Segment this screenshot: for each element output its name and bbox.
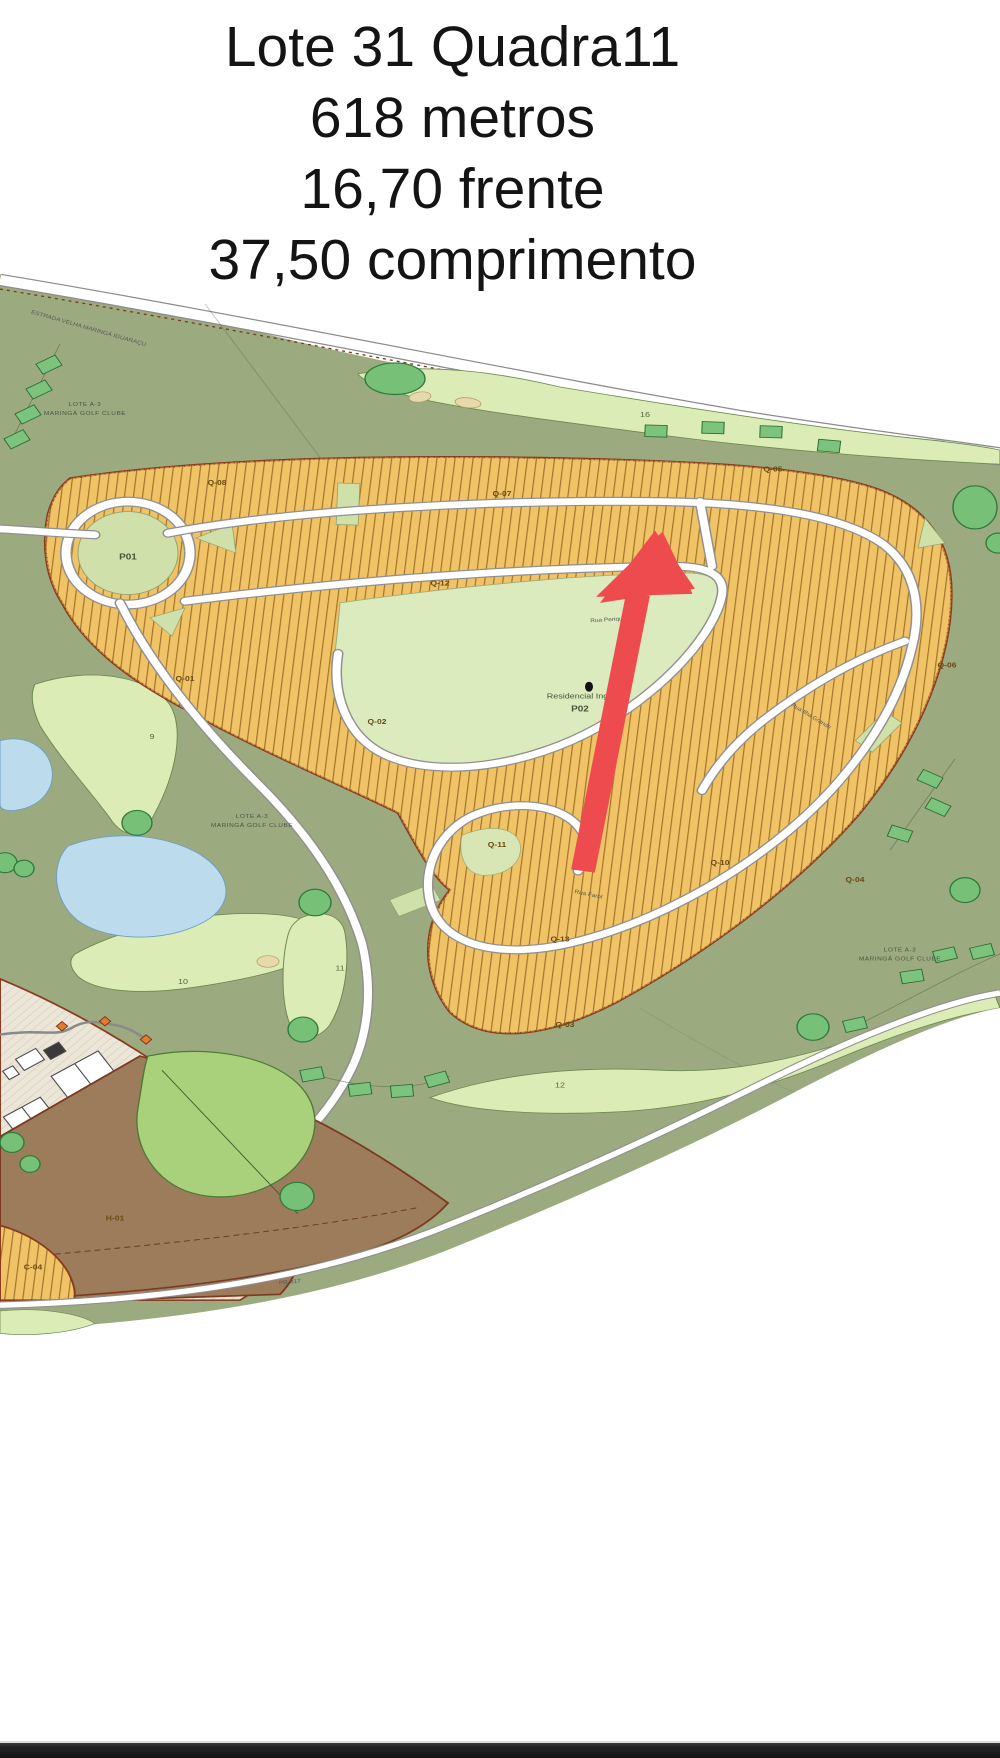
golf-club-caption-line1: LOTE A-3 xyxy=(884,948,917,953)
block-label-q01: Q-01 xyxy=(176,675,196,683)
block-label-q06: Q-06 xyxy=(938,661,958,669)
hole-10-label: 10 xyxy=(178,978,188,986)
hole-9-label: 9 xyxy=(149,733,154,741)
title-lot-line: Lote 31 Quadra11 xyxy=(0,12,905,83)
golf-club-caption-line2: MARINGÁ GOLF CLUBE xyxy=(211,822,293,828)
golf-club-caption-line2: MARINGÁ GOLF CLUBE xyxy=(44,411,126,417)
tree-icon xyxy=(797,1014,829,1041)
golf-club-caption-line1: LOTE A-3 xyxy=(69,403,102,408)
golf-club-caption-line2: MARINGÁ GOLF CLUBE xyxy=(859,956,941,962)
block-label-q07: Q-07 xyxy=(493,489,512,497)
block-label-q13: Q-13 xyxy=(551,935,571,943)
hole-12-label: 12 xyxy=(555,1081,565,1089)
block-label-q02: Q-02 xyxy=(368,718,388,726)
residencial-inga-label: Residencial Ingá xyxy=(547,692,614,700)
p02-label: P02 xyxy=(571,704,589,713)
hole-11-label: 11 xyxy=(335,964,345,972)
tree-icon xyxy=(14,860,34,877)
block-label-q05: Q-05 xyxy=(764,465,784,473)
hole-16-label: 16 xyxy=(640,411,650,419)
tree-icon xyxy=(299,889,331,916)
tree-icon xyxy=(365,363,425,395)
tree-icon xyxy=(20,1156,40,1173)
block-label-q04: Q-04 xyxy=(846,875,866,883)
site-plan-map: ESTRADA VELHA MARINGÁ IGUARAÇU xyxy=(0,265,1000,1560)
block-label-h01: H-01 xyxy=(106,1214,125,1222)
tree-icon xyxy=(953,486,997,529)
block-label-q03: Q-03 xyxy=(556,1021,576,1029)
device-bottom-bar xyxy=(0,1741,1000,1758)
site-plan-svg: ESTRADA VELHA MARINGÁ IGUARAÇU xyxy=(0,265,1000,1560)
tree-icon xyxy=(280,1182,314,1210)
tree-icon xyxy=(122,810,152,835)
listing-title: Lote 31 Quadra11 618 metros 16,70 frente… xyxy=(0,12,905,296)
block-label-q08: Q-08 xyxy=(208,479,228,487)
title-length-line: 37,50 comprimento xyxy=(0,225,905,296)
tree-icon xyxy=(288,1017,318,1042)
block-label-q12: Q-12 xyxy=(431,579,451,587)
title-front-line: 16,70 frente xyxy=(0,154,905,225)
tree-icon xyxy=(950,878,980,903)
block-label-c04: C-04 xyxy=(24,1263,43,1271)
p01-label: P01 xyxy=(119,552,137,561)
tree-icon xyxy=(0,1132,24,1152)
listing-screenshot: Lote 31 Quadra11 618 metros 16,70 frente… xyxy=(0,0,1000,1758)
title-area-line: 618 metros xyxy=(0,83,905,154)
block-label-q10: Q-10 xyxy=(711,859,731,867)
location-dot-icon xyxy=(585,682,593,692)
block-label-q11: Q-11 xyxy=(488,841,507,849)
golf-club-caption-line1: LOTE A-3 xyxy=(236,814,269,819)
